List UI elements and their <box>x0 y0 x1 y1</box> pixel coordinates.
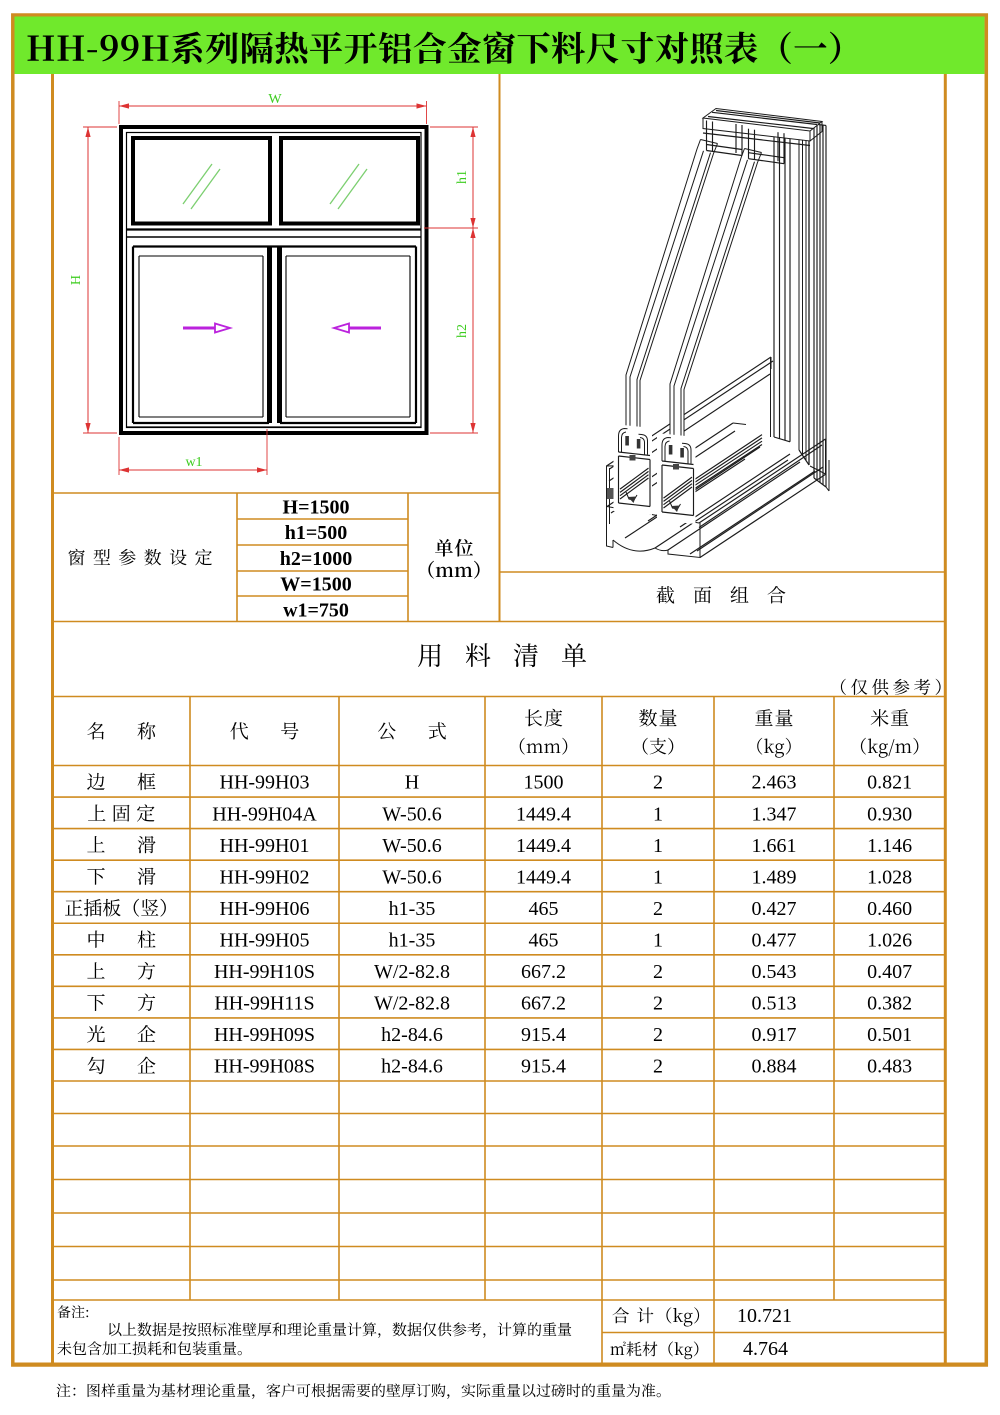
svg-text:915.4: 915.4 <box>521 1056 566 1078</box>
svg-text:HH-99H01: HH-99H01 <box>220 835 310 857</box>
svg-text:1449.4: 1449.4 <box>516 866 571 888</box>
svg-text:10.721: 10.721 <box>737 1305 792 1327</box>
svg-text:h1=500: h1=500 <box>285 522 348 544</box>
svg-text:0.884: 0.884 <box>752 1056 797 1078</box>
svg-text:0.427: 0.427 <box>752 898 797 920</box>
svg-text:1: 1 <box>653 803 663 825</box>
svg-text:h2=1000: h2=1000 <box>280 548 353 570</box>
svg-text:1449.4: 1449.4 <box>516 835 571 857</box>
svg-text:W=1500: W=1500 <box>280 574 351 596</box>
svg-text:1.347: 1.347 <box>752 803 797 825</box>
svg-text:0.382: 0.382 <box>867 993 912 1015</box>
svg-text:0.513: 0.513 <box>752 993 797 1015</box>
svg-text:1: 1 <box>653 835 663 857</box>
svg-text:h1-35: h1-35 <box>389 898 436 920</box>
svg-text:w1=750: w1=750 <box>283 599 349 621</box>
svg-text:HH-99H11S: HH-99H11S <box>214 993 314 1015</box>
svg-text:0.821: 0.821 <box>867 772 912 794</box>
svg-text:2: 2 <box>653 898 663 920</box>
svg-text:HH-99H09S: HH-99H09S <box>214 1024 315 1046</box>
svg-text:1.028: 1.028 <box>867 866 912 888</box>
svg-text:W-50.6: W-50.6 <box>382 803 441 825</box>
svg-text:2.463: 2.463 <box>752 772 797 794</box>
svg-text:h2-84.6: h2-84.6 <box>381 1024 443 1046</box>
svg-text:2: 2 <box>653 961 663 983</box>
svg-text:2: 2 <box>653 1024 663 1046</box>
svg-text:4.764: 4.764 <box>743 1338 788 1360</box>
svg-text:1: 1 <box>653 866 663 888</box>
svg-text:HH-99H06: HH-99H06 <box>220 898 310 920</box>
svg-text:2: 2 <box>653 772 663 794</box>
svg-text:H: H <box>69 275 84 285</box>
svg-text:0.460: 0.460 <box>867 898 912 920</box>
svg-text:h1: h1 <box>455 170 470 184</box>
svg-text:1: 1 <box>653 929 663 951</box>
svg-text:W/2-82.8: W/2-82.8 <box>374 993 450 1015</box>
svg-text:HH-99H10S: HH-99H10S <box>214 961 315 983</box>
svg-text:667.2: 667.2 <box>521 961 566 983</box>
svg-text:1500: 1500 <box>524 772 564 794</box>
svg-text:HH-99H05: HH-99H05 <box>220 929 310 951</box>
svg-text:w1: w1 <box>185 455 202 470</box>
svg-text:465: 465 <box>529 929 559 951</box>
svg-text:915.4: 915.4 <box>521 1024 566 1046</box>
svg-text:1.489: 1.489 <box>752 866 797 888</box>
svg-text:465: 465 <box>529 898 559 920</box>
svg-text:0.407: 0.407 <box>867 961 912 983</box>
svg-text:2: 2 <box>653 1056 663 1078</box>
svg-text:HH-99H04A: HH-99H04A <box>212 803 317 825</box>
svg-text:667.2: 667.2 <box>521 993 566 1015</box>
svg-text:W: W <box>268 92 282 107</box>
svg-text:2: 2 <box>653 993 663 1015</box>
svg-text:1.146: 1.146 <box>867 835 912 857</box>
svg-text:0.501: 0.501 <box>867 1024 912 1046</box>
svg-text:0.483: 0.483 <box>867 1056 912 1078</box>
svg-text:0.477: 0.477 <box>752 929 797 951</box>
svg-text:H: H <box>405 772 419 794</box>
svg-text:1449.4: 1449.4 <box>516 803 571 825</box>
svg-text:h2: h2 <box>455 324 470 338</box>
svg-text:W-50.6: W-50.6 <box>382 866 441 888</box>
svg-text:h2-84.6: h2-84.6 <box>381 1056 443 1078</box>
svg-text:0.930: 0.930 <box>867 803 912 825</box>
svg-text:HH-99H08S: HH-99H08S <box>214 1056 315 1078</box>
svg-text:W/2-82.8: W/2-82.8 <box>374 961 450 983</box>
svg-text:h1-35: h1-35 <box>389 929 436 951</box>
svg-text:0.543: 0.543 <box>752 961 797 983</box>
svg-text:H=1500: H=1500 <box>283 497 350 519</box>
svg-text:HH-99H02: HH-99H02 <box>220 866 310 888</box>
svg-text:1.661: 1.661 <box>752 835 797 857</box>
svg-text:HH-99H03: HH-99H03 <box>220 772 310 794</box>
svg-text:1.026: 1.026 <box>867 929 912 951</box>
svg-text:W-50.6: W-50.6 <box>382 835 441 857</box>
svg-text:0.917: 0.917 <box>752 1024 797 1046</box>
